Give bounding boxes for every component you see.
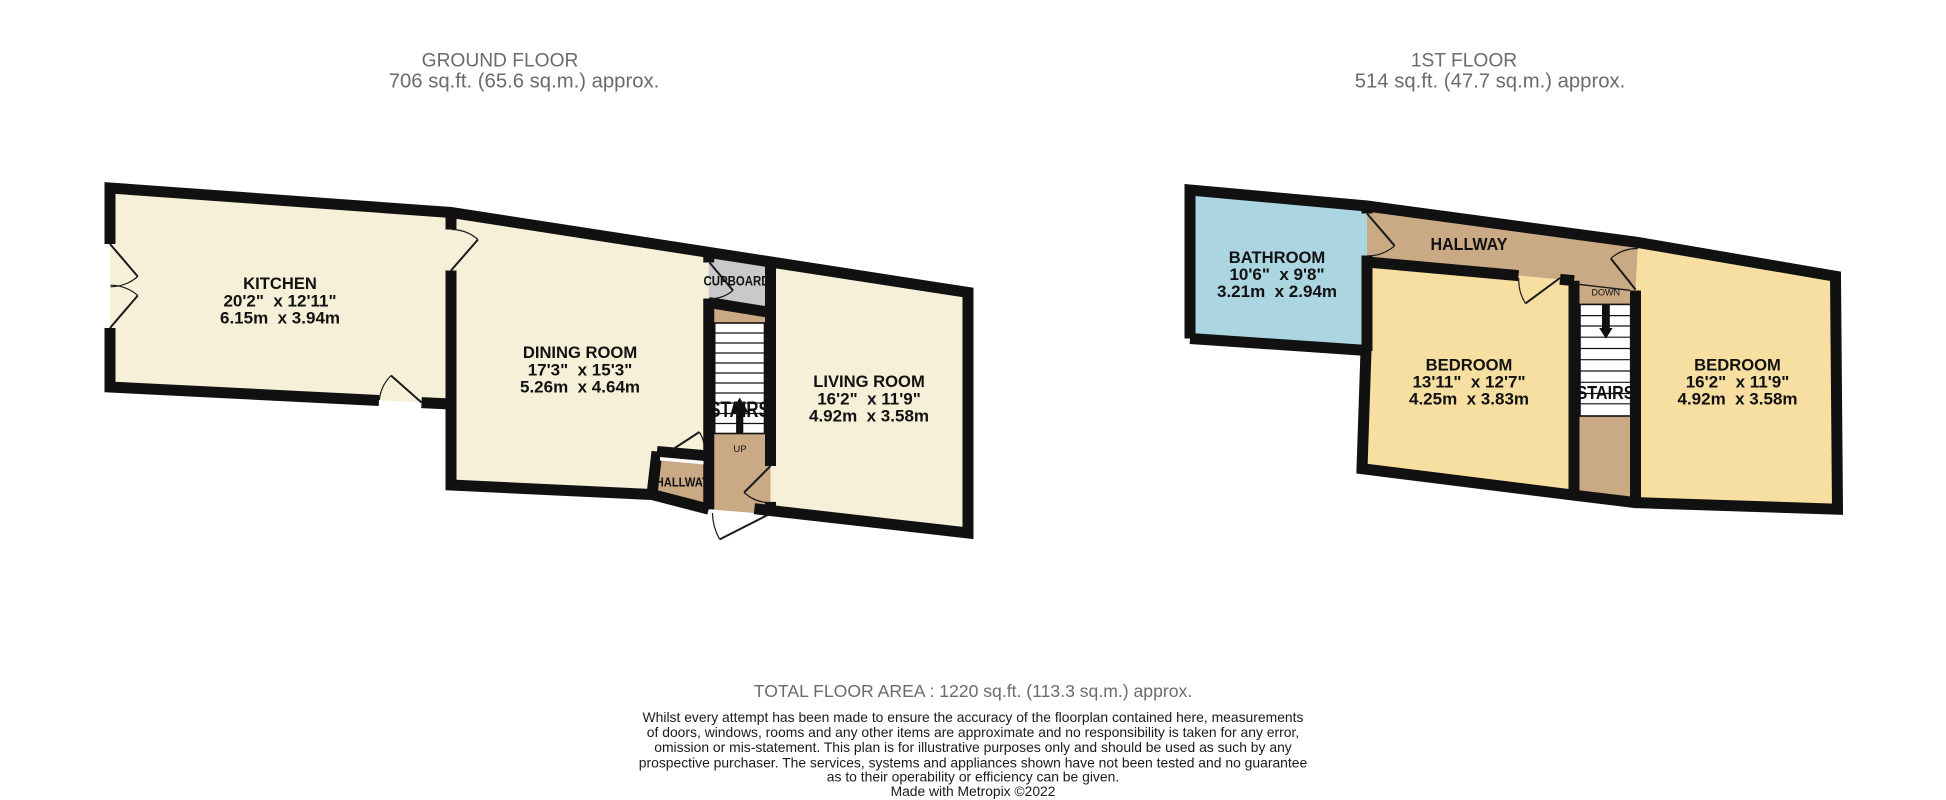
svg-text:Whilst every attempt has been: Whilst every attempt has been made to en… [643,709,1304,725]
svg-text:KITCHEN: KITCHEN [243,274,317,293]
svg-text:UP: UP [733,444,746,455]
svg-text:HALLWAY: HALLWAY [1431,234,1508,254]
svg-text:5.26m x 4.64m: 5.26m x 4.64m [520,377,640,396]
svg-text:STAIRS: STAIRS [709,397,770,422]
svg-text:4.25m x 3.83m: 4.25m x 3.83m [1409,390,1529,409]
svg-text:HALLWAY: HALLWAY [656,475,710,489]
svg-text:4.92m x 3.58m: 4.92m x 3.58m [1677,390,1797,409]
svg-text:706 sq.ft. (65.6 sq.m.) approx: 706 sq.ft. (65.6 sq.m.) approx. [389,71,660,93]
svg-text:DINING ROOM: DINING ROOM [523,343,637,362]
svg-text:TOTAL FLOOR AREA : 1220 sq.ft.: TOTAL FLOOR AREA : 1220 sq.ft. (113.3 sq… [754,681,1192,701]
svg-text:1ST FLOOR: 1ST FLOOR [1411,50,1517,71]
svg-text:STAIRS: STAIRS [1577,382,1635,403]
svg-text:4.92m x 3.58m: 4.92m x 3.58m [809,406,929,425]
svg-text:CUPBOARD: CUPBOARD [704,274,770,289]
svg-text:GROUND FLOOR: GROUND FLOOR [422,50,579,71]
svg-text:6.15m x 3.94m: 6.15m x 3.94m [220,309,340,328]
svg-text:3.21m x 2.94m: 3.21m x 2.94m [1217,282,1337,301]
svg-text:LIVING ROOM: LIVING ROOM [813,372,925,391]
svg-text:omission or mis-statement. Thi: omission or mis-statement. This plan is … [654,739,1292,755]
svg-text:Made with Metropix ©2022: Made with Metropix ©2022 [891,783,1056,799]
svg-text:DOWN: DOWN [1592,287,1621,297]
svg-text:of doors, windows, rooms and a: of doors, windows, rooms and any other i… [647,724,1299,740]
svg-text:514 sq.ft. (47.7 sq.m.) approx: 514 sq.ft. (47.7 sq.m.) approx. [1355,71,1626,93]
